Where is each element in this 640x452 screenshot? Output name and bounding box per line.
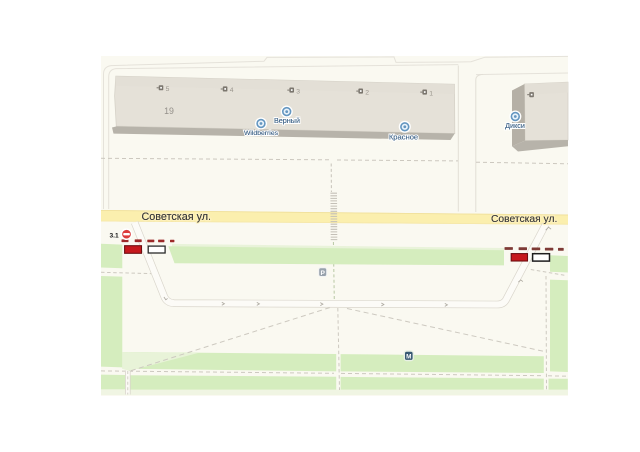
svg-text:1: 1: [429, 90, 433, 97]
svg-text:Красное: Красное: [389, 132, 418, 141]
svg-text:Советская ул.: Советская ул.: [142, 211, 212, 223]
svg-text:Дикси: Дикси: [505, 121, 525, 130]
svg-text:Советская ул.: Советская ул.: [491, 214, 557, 225]
svg-text:3.1: 3.1: [110, 232, 119, 239]
svg-text:М: М: [406, 354, 411, 361]
svg-text:5: 5: [166, 86, 170, 93]
svg-text:Верный: Верный: [274, 116, 300, 125]
svg-text:2: 2: [365, 89, 369, 96]
svg-text:P: P: [320, 270, 325, 277]
svg-text:Wildberries: Wildberries: [244, 130, 279, 137]
svg-text:3: 3: [296, 88, 300, 95]
svg-text:19: 19: [164, 106, 174, 116]
svg-text:4: 4: [230, 87, 234, 94]
